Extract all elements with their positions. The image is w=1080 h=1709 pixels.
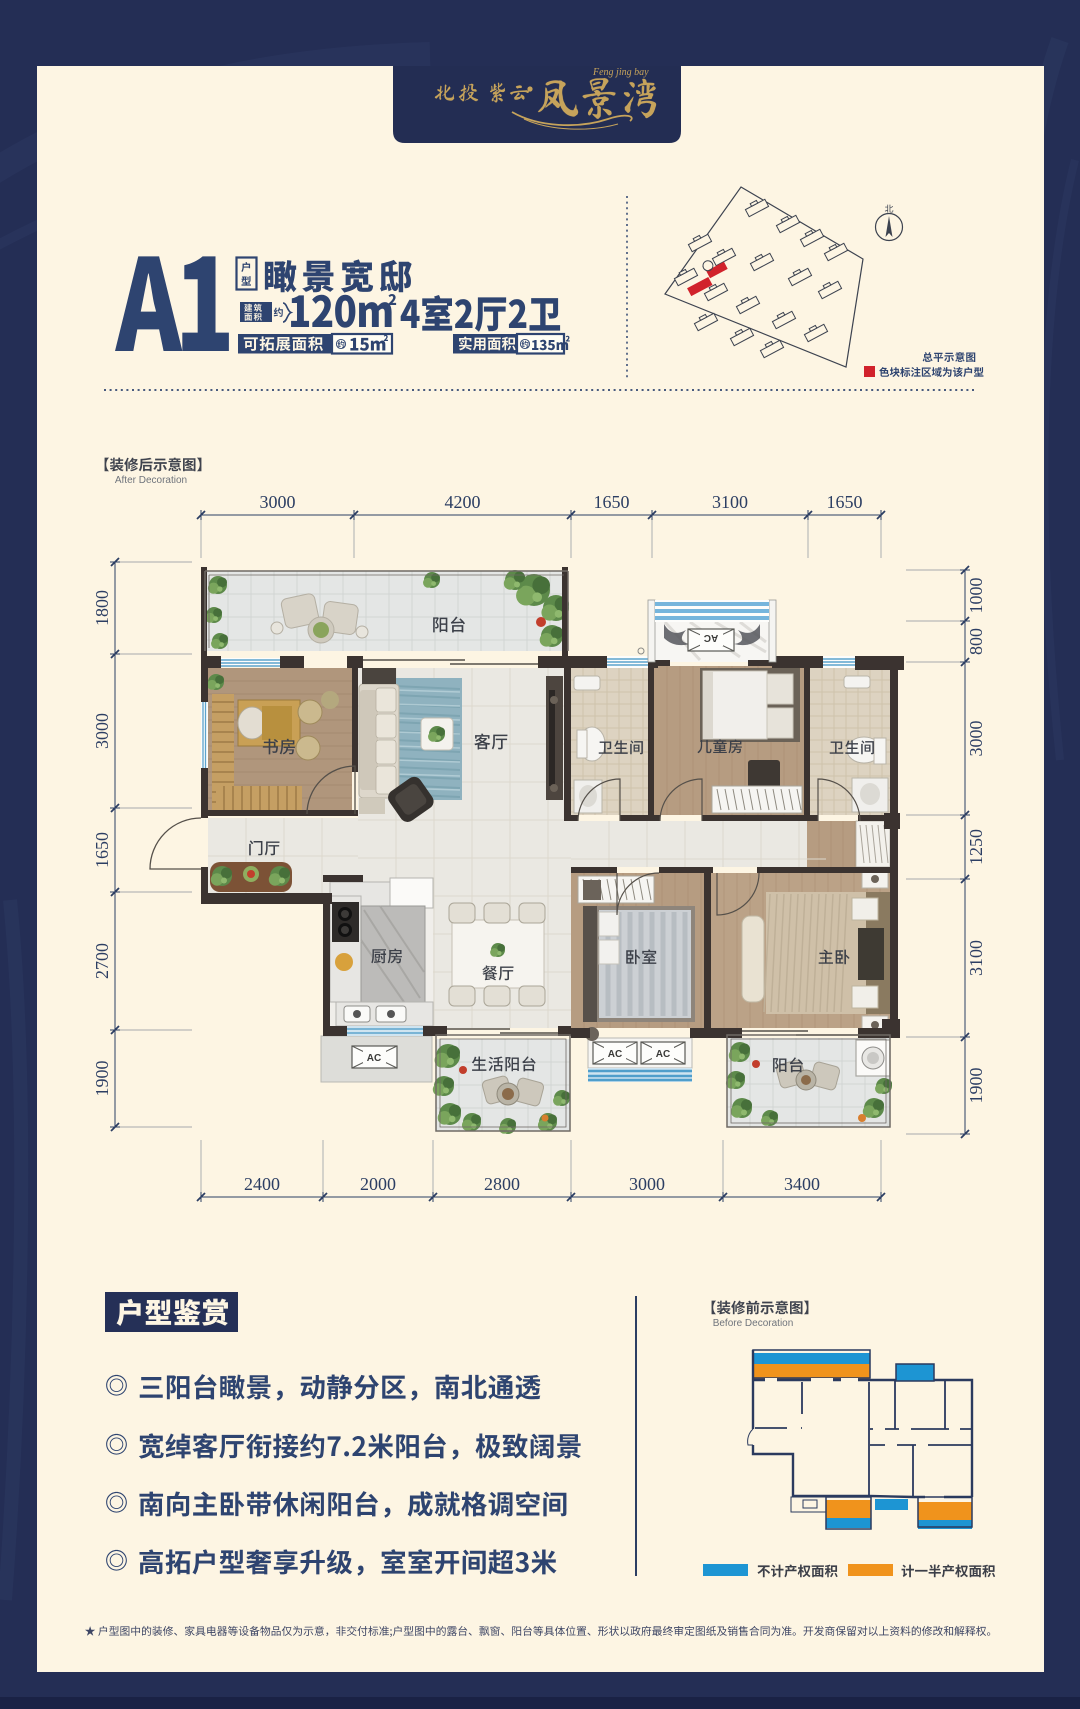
svg-text:3000: 3000 (260, 492, 296, 512)
svg-text:AC: AC (704, 632, 718, 643)
svg-text:2000: 2000 (360, 1174, 396, 1194)
svg-text:3000: 3000 (629, 1174, 665, 1194)
svg-text:AC: AC (608, 1049, 622, 1060)
svg-text:2700: 2700 (92, 943, 112, 979)
svg-text:1650: 1650 (594, 492, 630, 512)
svg-text:1800: 1800 (92, 590, 112, 626)
svg-text:Before Decoration: Before Decoration (713, 1318, 794, 1329)
svg-text:Feng jing bay: Feng jing bay (592, 67, 649, 78)
svg-text:1000: 1000 (966, 578, 986, 614)
svg-text:3000: 3000 (92, 713, 112, 749)
svg-text:1900: 1900 (966, 1068, 986, 1104)
svg-text:800: 800 (966, 628, 986, 655)
svg-text:After Decoration: After Decoration (115, 475, 187, 486)
svg-text:AC: AC (656, 1049, 670, 1060)
svg-text:1650: 1650 (92, 832, 112, 868)
svg-text:3100: 3100 (712, 492, 748, 512)
svg-text:2400: 2400 (244, 1174, 280, 1194)
svg-text:1250: 1250 (966, 829, 986, 865)
svg-text:1650: 1650 (827, 492, 863, 512)
svg-text:2800: 2800 (484, 1174, 520, 1194)
svg-text:AC: AC (367, 1053, 381, 1064)
svg-text:3400: 3400 (784, 1174, 820, 1194)
svg-text:3100: 3100 (966, 940, 986, 976)
svg-text:4200: 4200 (445, 492, 481, 512)
svg-text:3000: 3000 (966, 721, 986, 757)
svg-text:1900: 1900 (92, 1061, 112, 1097)
